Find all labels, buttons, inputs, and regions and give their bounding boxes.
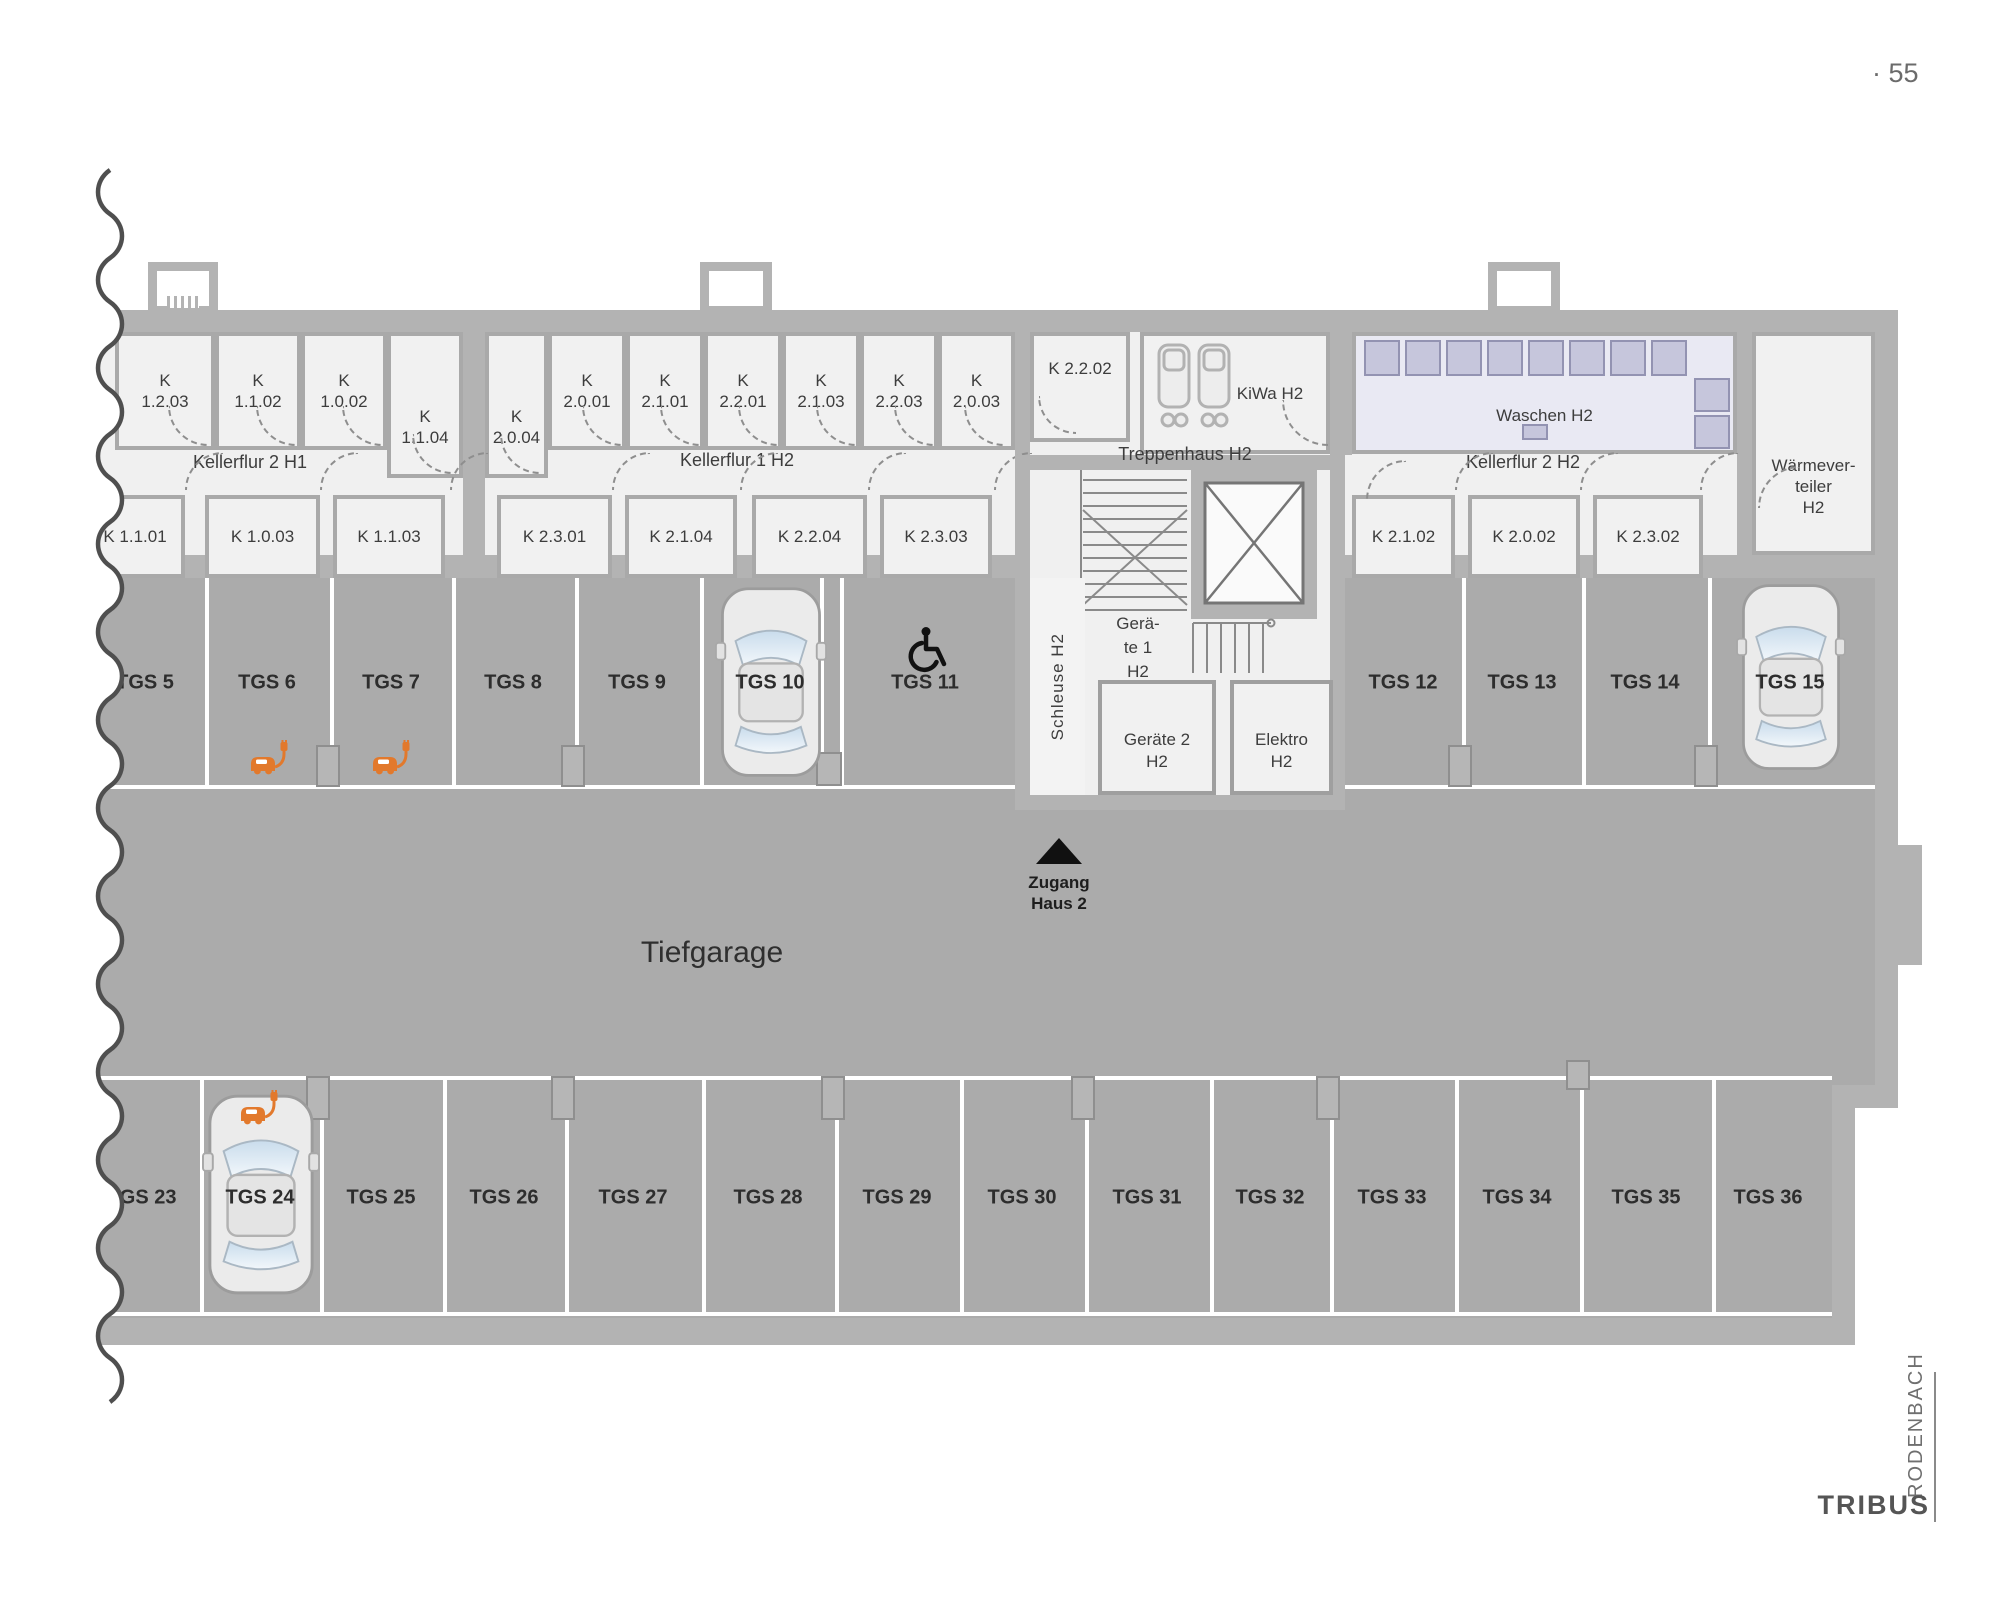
structural-column [821,1076,845,1120]
entrance-line2: Haus 2 [1031,894,1087,913]
parking-spot-label: TGS 25 [347,1187,416,1210]
parking-spot-label: TGS 33 [1358,1187,1427,1210]
room-label: H2 [1271,751,1293,773]
parking-spot-label: TGS 30 [988,1187,1057,1210]
room-label: K [419,406,430,427]
parking-spot-label: TGS 29 [863,1187,932,1210]
parking-spot-label: TGS 34 [1483,1187,1552,1210]
room-label: H2 [1127,662,1149,681]
room-label: Schleuse H2 [1048,633,1068,740]
light-well [1488,262,1560,315]
parking-divider-line [702,1076,706,1316]
parking-spot-label: TGS 24 [226,1187,295,1210]
entrance-label: Zugang Haus 2 [1028,872,1089,914]
logo-divider [1934,1372,1936,1522]
cellar-room: K 2.3.02 [1593,495,1703,578]
plan-cut-edge [40,150,140,1430]
washing-machine [1446,340,1482,376]
outer-wall-lower-right [1832,1085,1855,1345]
room-label: K [511,406,522,427]
room-label: K 2.3.03 [904,526,967,547]
structural-column [1566,1060,1590,1090]
washing-machine [1528,340,1564,376]
cellar-room: K 2.1.04 [625,495,737,578]
parking-divider-line [85,1312,1832,1316]
washing-machine [1364,340,1400,376]
laundry-control-box [1522,424,1548,440]
parking-spot-label: TGS 9 [608,672,666,695]
parking-spot-label: TGS 32 [1236,1187,1305,1210]
parking-spot-label: TGS 11 [891,672,959,695]
washing-machine [1405,340,1441,376]
outer-wall-right [1875,310,1898,1085]
parking-divider-line [85,785,1015,789]
heat-distribution-room: Wärmever- teiler H2 [1752,332,1875,555]
washing-machine [1694,378,1730,412]
light-well-grate [167,296,199,308]
garage-title: Tiefgarage [641,936,783,970]
parking-divider-line [1345,785,1875,789]
page-number: · 55 [1872,58,1919,89]
cellar-room: K 2.3.03 [880,495,992,578]
stroller-icon [1156,342,1234,434]
entrance-line1: Zugang [1028,873,1089,892]
structural-column [1071,1076,1095,1120]
room-label: Gerä- [1116,614,1159,633]
room-label: H2 [1146,751,1168,773]
washing-machine [1569,340,1605,376]
room-label: Geräte 2 [1124,729,1190,751]
structural-column [1694,745,1718,787]
wheelchair-icon [903,626,947,674]
structural-column [316,745,340,787]
wall-kiwa-right [1330,332,1352,455]
parking-spot-label: TGS 36 [1734,1187,1803,1210]
structural-column [561,745,585,787]
room-label: te 1 [1124,638,1152,657]
washing-machine [1610,340,1646,376]
parking-spot-label: TGS 10 [736,672,805,695]
parking-divider-line [1455,1076,1459,1316]
room-label: K [893,370,904,391]
parking-divider-line [1712,1076,1716,1316]
room-label: teiler [1795,476,1832,497]
room-label: K 1.0.03 [231,526,294,547]
room-label: K [338,370,349,391]
floor-plan-page: · 55 [0,0,2008,1606]
parking-spot-label: TGS 28 [734,1187,803,1210]
parking-spot-label: TGS 6 [238,672,296,695]
room-label: K [581,370,592,391]
room-label: K [252,370,263,391]
room-label: K [737,370,748,391]
washing-machine [1694,415,1730,449]
parking-divider-line [1582,578,1586,785]
parking-spot-label: TGS 35 [1612,1187,1681,1210]
parking-divider-line [1580,1076,1584,1316]
electrical-room: Elektro H2 [1230,680,1333,795]
parking-spot-label: TGS 14 [1611,672,1680,695]
parking-spot-label: TGS 7 [362,672,420,695]
parking-spot-label: TGS 27 [599,1187,668,1210]
entrance-arrow-icon [1036,838,1082,864]
cellar-room: K 2.0.02 [1468,495,1580,578]
cellar-room: K 1.1.03 [333,495,445,578]
structural-column [1448,745,1472,787]
room-label: K [971,370,982,391]
room-label: K [159,370,170,391]
room-label: K 2.3.02 [1616,526,1679,547]
parking-spot-label: TGS 31 [1113,1187,1182,1210]
parking-divider-line [452,578,456,785]
wall-waermeverteiler-left [1737,332,1752,578]
ev-charging-icon [370,740,410,776]
cellar-room: K 2.2.04 [752,495,867,578]
room-label: K [659,370,670,391]
ev-charging-icon [238,1090,278,1126]
room-label: K 2.3.01 [523,526,586,547]
parking-divider-line [205,578,209,785]
room-label: K [815,370,826,391]
room-label: K 2.2.04 [778,526,841,547]
ev-charging-icon [248,740,288,776]
light-well [700,262,772,315]
parking-spot-label: TGS 12 [1369,672,1438,695]
cellar-room: K 2.1.02 [1352,495,1455,578]
cellar-room: K 1.0.03 [205,495,320,578]
room-label: Waschen H2 [1496,405,1593,426]
cellar-room: K 2.2.02 [1030,332,1130,442]
parking-divider-line [960,1076,964,1316]
garage-floor [85,578,1875,1085]
room-label: K 2.1.04 [649,526,712,547]
room-label: K 1.1.03 [357,526,420,547]
wall-step-out [1898,845,1922,965]
parking-divider-line [700,578,704,785]
wall-landing-left [1015,332,1030,455]
brand-name: TRIBUS [1818,1490,1931,1521]
light-well [148,262,218,315]
parking-divider-line [1210,1076,1214,1316]
parking-spot-label: TGS 8 [484,672,542,695]
room-label: K 2.0.02 [1492,526,1555,547]
room-label: Elektro [1255,729,1308,751]
corridor-label: Treppenhaus H2 [1118,444,1251,465]
parking-divider-line [443,1076,447,1316]
airlock-corridor: Schleuse H2 [1030,578,1085,795]
parking-spot-label: TGS 15 [1756,672,1825,695]
equipment-room-2: Geräte 2 H2 [1098,680,1216,795]
washing-machine [1651,340,1687,376]
cellar-room: K 2.3.01 [497,495,612,578]
outer-wall-top [85,310,1898,332]
brand-location: RODENBACH [1905,1368,1928,1498]
washing-machine [1487,340,1523,376]
structural-column [1316,1076,1340,1120]
equipment-room-1: Gerä- te 1 H2 [1092,612,1184,684]
room-label: K 2.1.02 [1372,526,1435,547]
room-label: H2 [1803,497,1825,518]
brand-logo: RODENBACH TRIBUS [1810,1368,1940,1568]
outer-wall-bottom [85,1318,1855,1345]
room-label: K 2.2.02 [1048,358,1111,379]
structural-column [551,1076,575,1120]
parking-spot-label: TGS 13 [1488,672,1557,695]
parking-spot-label: TGS 26 [470,1187,539,1210]
